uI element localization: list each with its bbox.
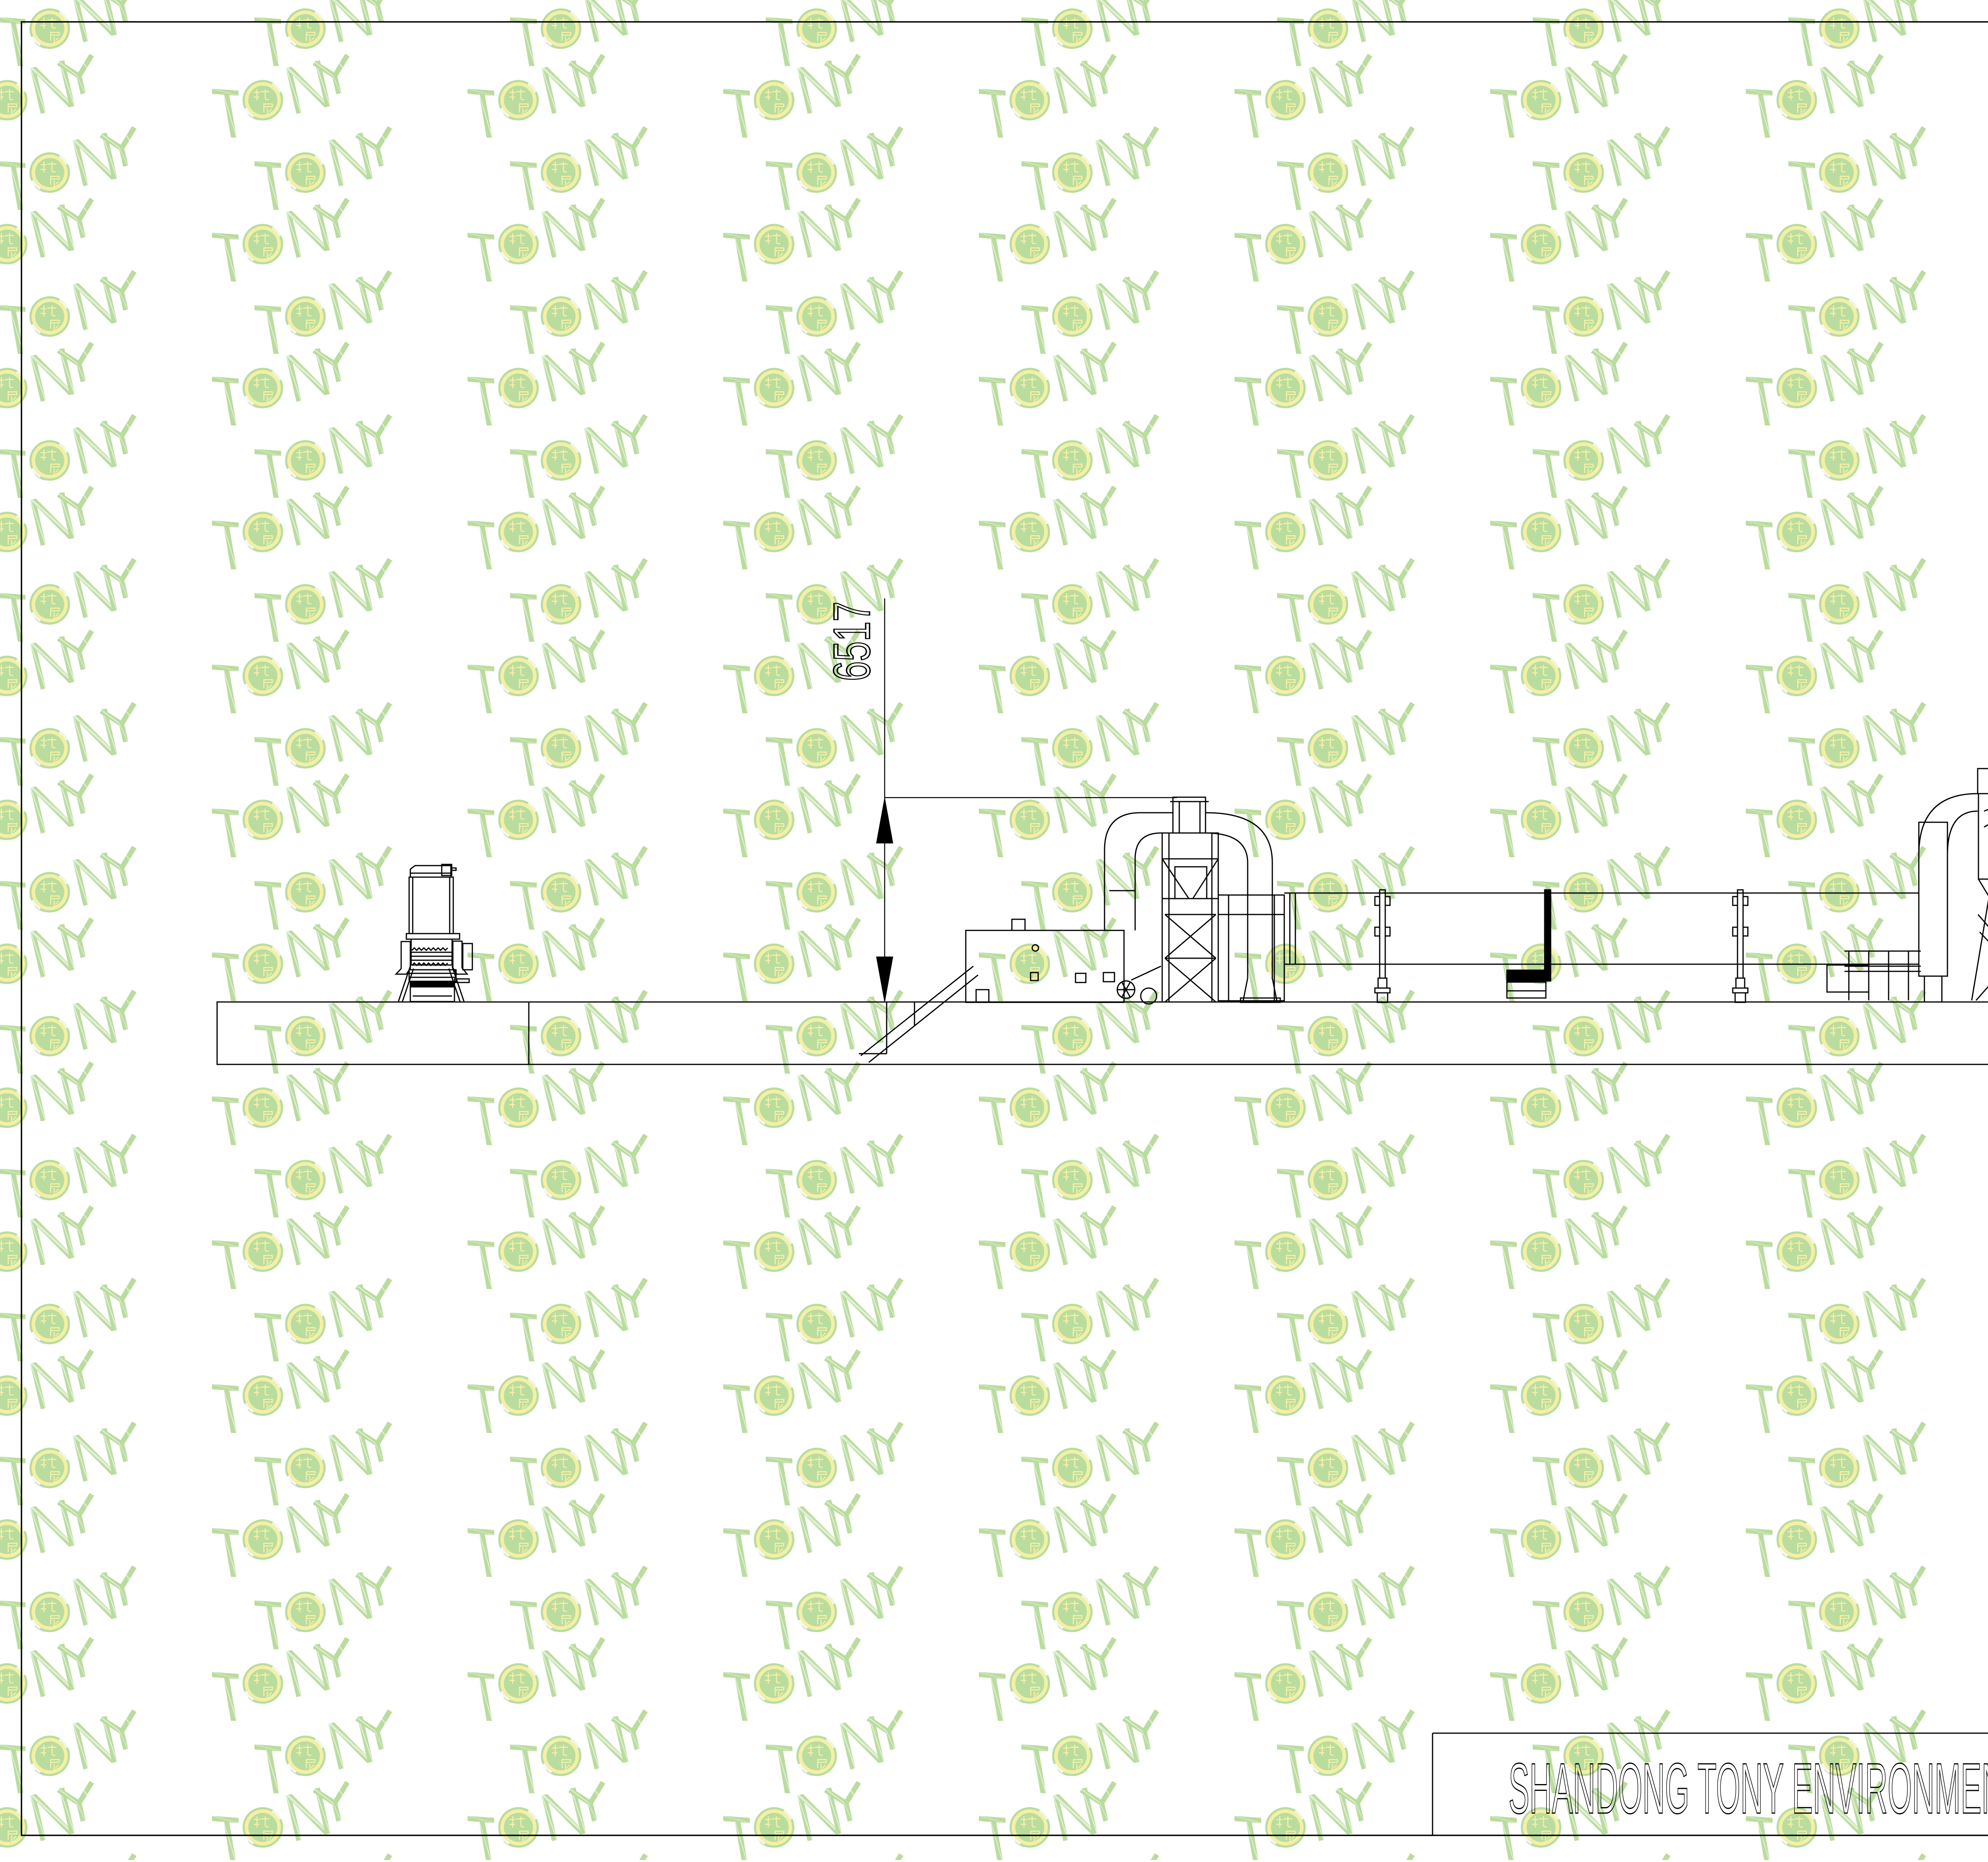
- svg-text:SHANDONG TONY ENVIRONMENTAL PR: SHANDONG TONY ENVIRONMENTAL PROTECTION S…: [1508, 1749, 1988, 1829]
- svg-text:6517: 6517: [823, 602, 881, 681]
